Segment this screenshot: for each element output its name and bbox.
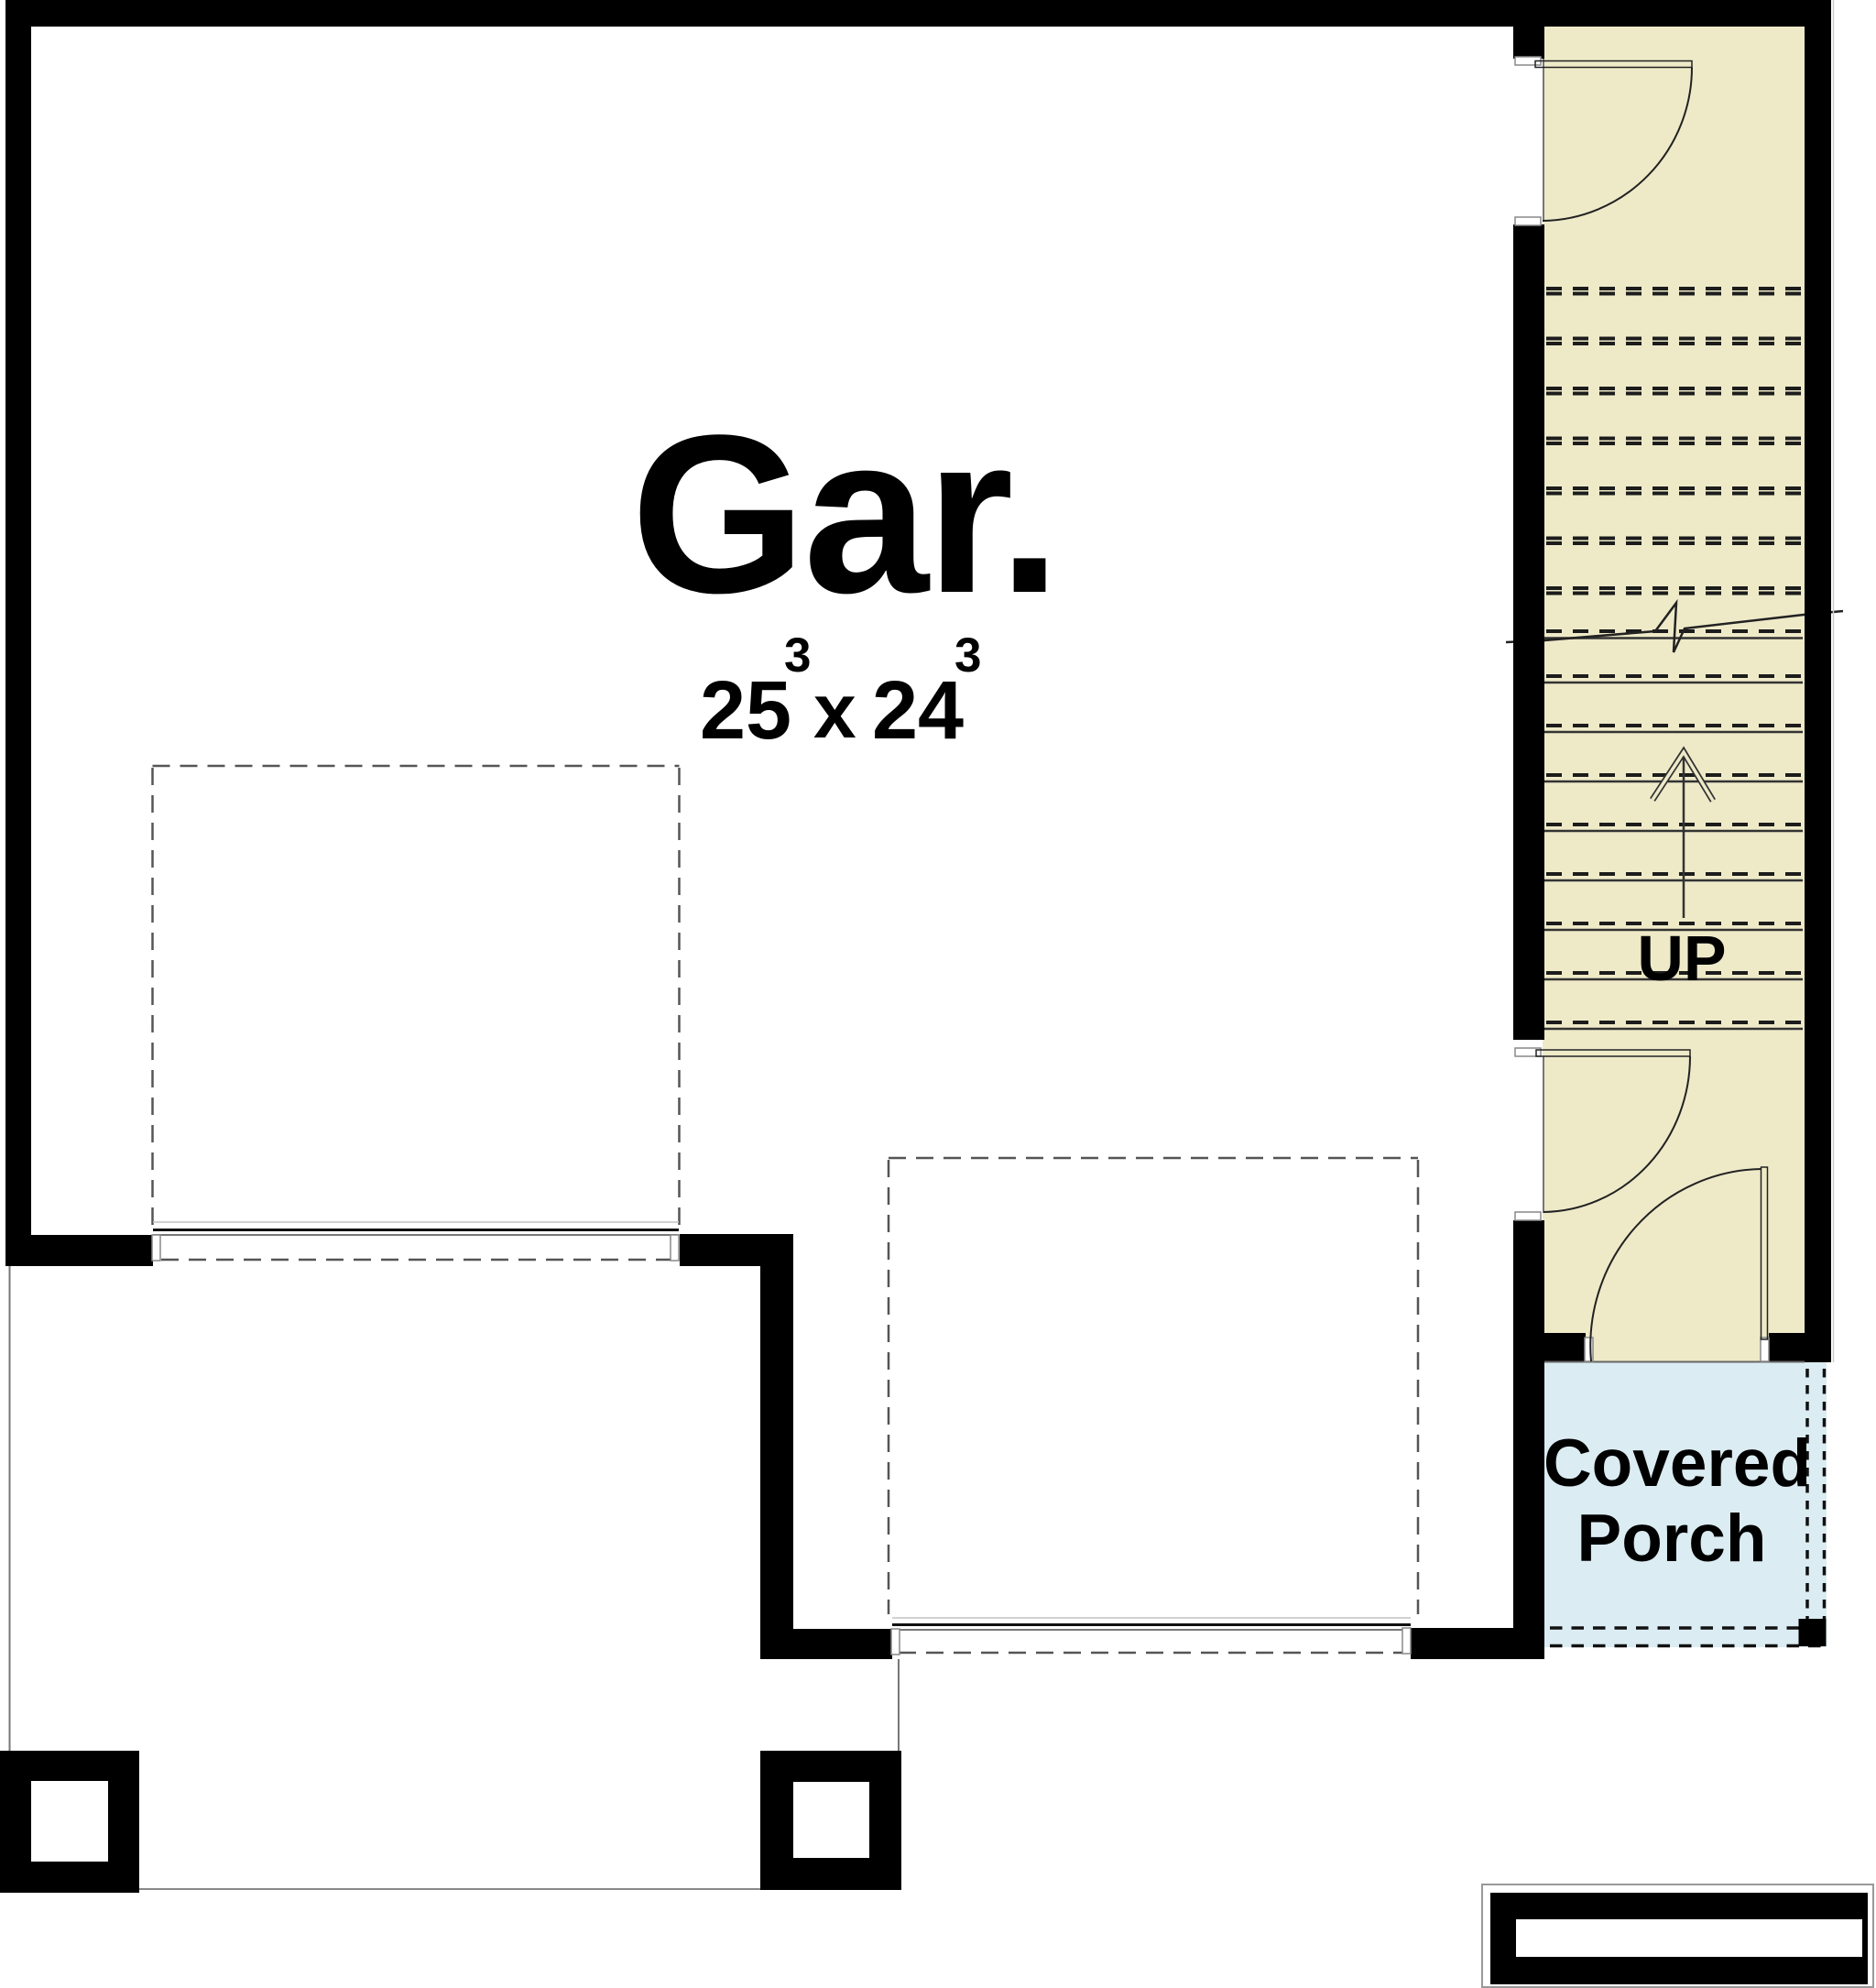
- svg-text:25: 25: [700, 665, 791, 757]
- svg-text:24: 24: [872, 665, 964, 757]
- svg-text:Covered: Covered: [1543, 1426, 1811, 1501]
- svg-text:3: 3: [784, 628, 811, 683]
- svg-text:UP: UP: [1637, 923, 1726, 994]
- svg-text:3: 3: [954, 628, 981, 683]
- svg-text:Porch: Porch: [1577, 1502, 1767, 1576]
- svg-text:Gar.: Gar.: [631, 388, 1059, 640]
- svg-text:x: x: [813, 668, 856, 754]
